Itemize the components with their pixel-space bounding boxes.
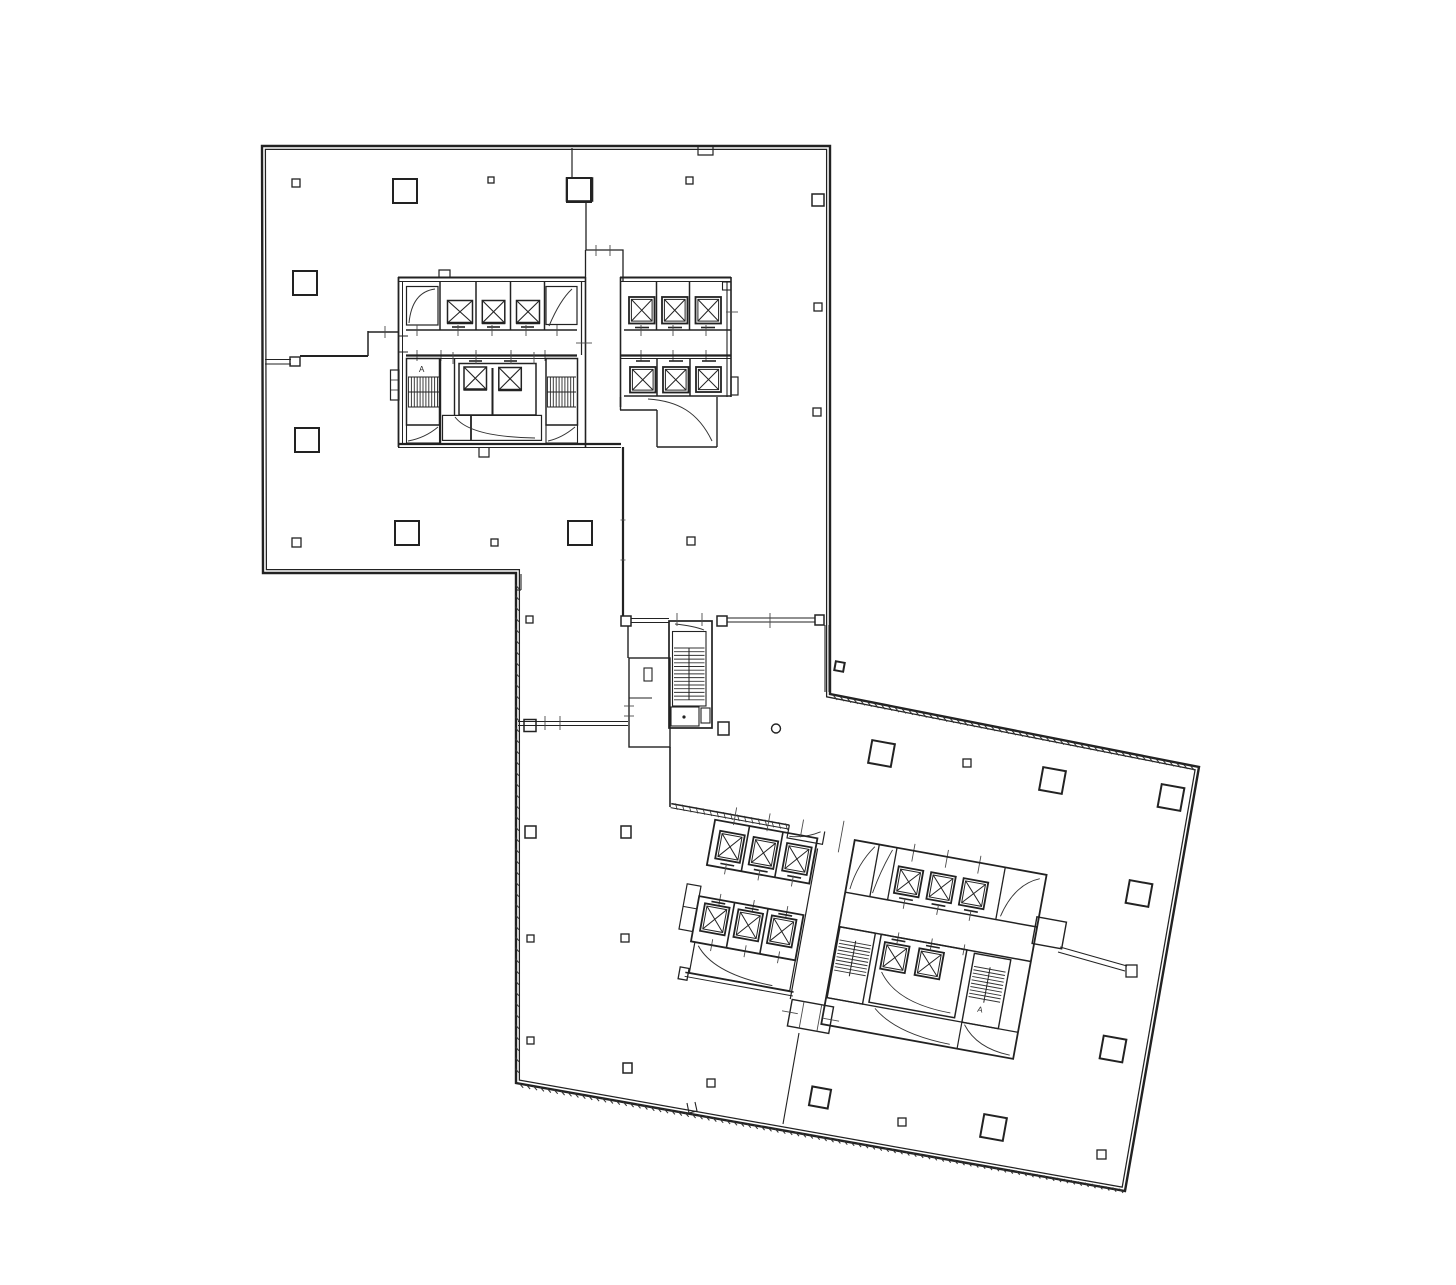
svg-text:A: A bbox=[419, 365, 425, 374]
svg-text:A: A bbox=[977, 1005, 985, 1015]
